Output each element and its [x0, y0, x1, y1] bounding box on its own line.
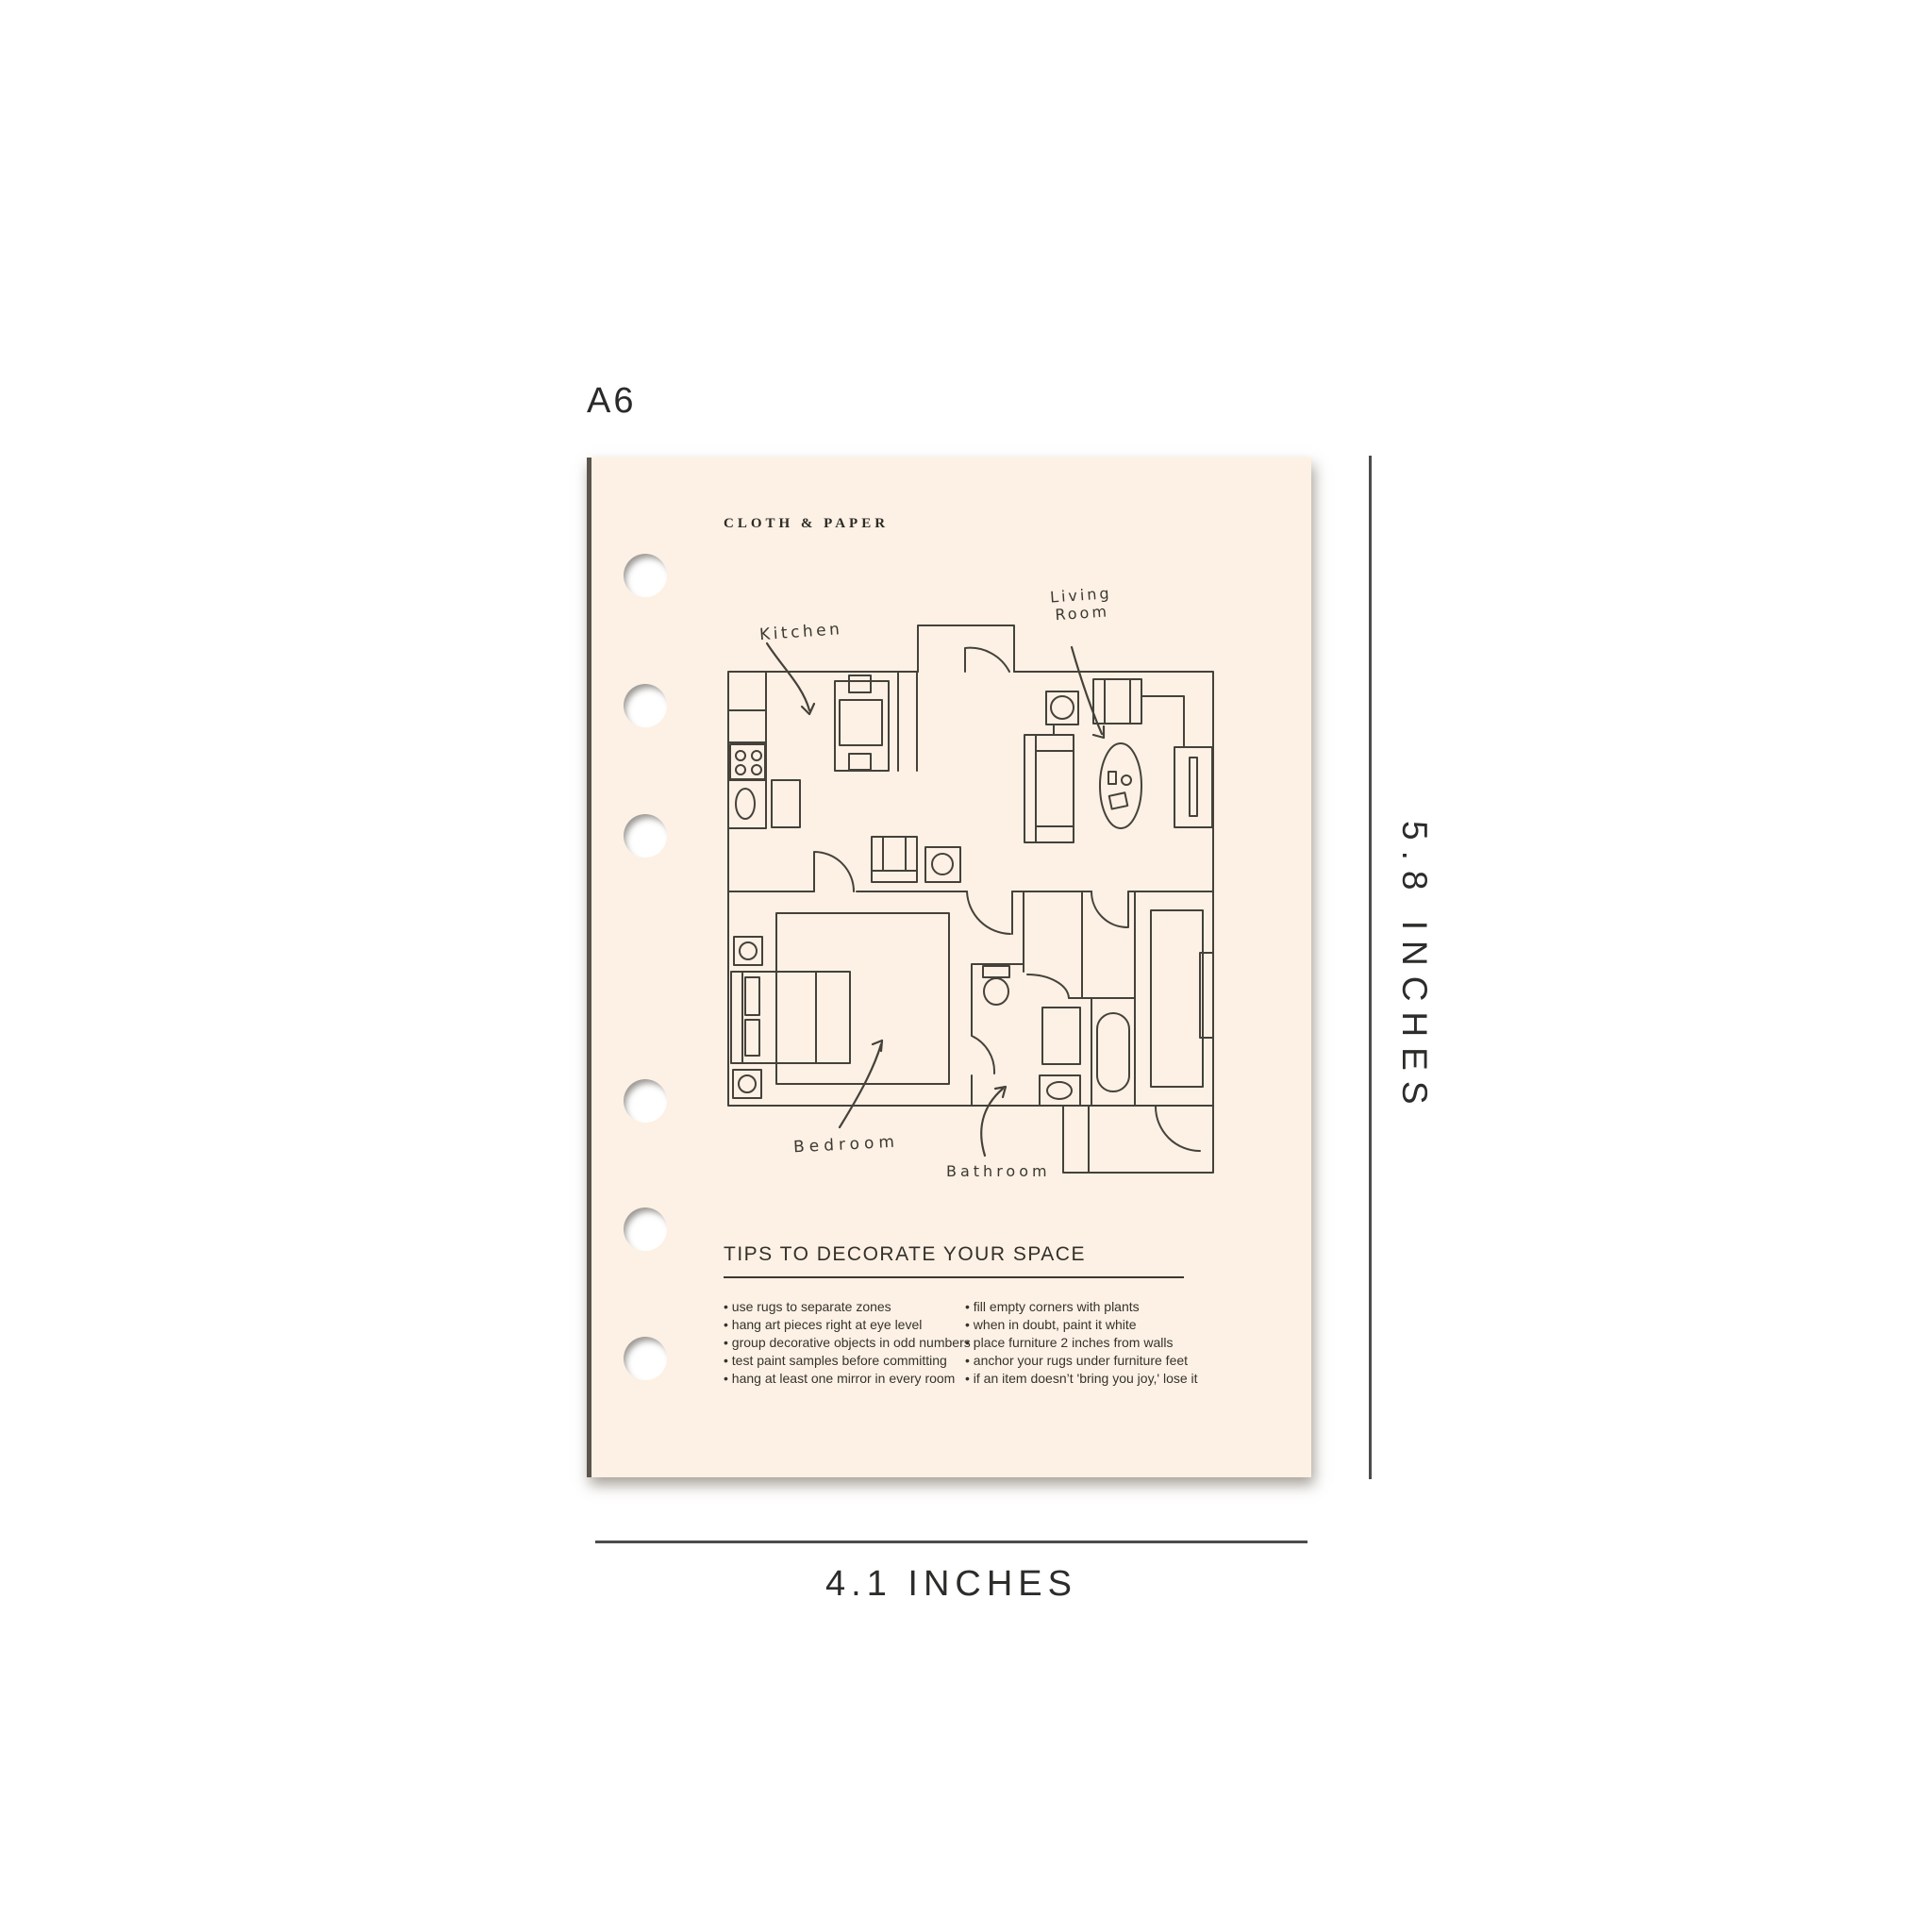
- tip-item: test paint samples before committing: [724, 1352, 971, 1370]
- tip-item: anchor your rugs under furniture feet: [965, 1352, 1198, 1370]
- tip-item: place furniture 2 inches from walls: [965, 1334, 1198, 1352]
- tip-item: group decorative objects in odd numbers: [724, 1334, 971, 1352]
- tips-left-column: use rugs to separate zones hang art piec…: [724, 1298, 971, 1388]
- bedroom-furniture: [731, 913, 949, 1098]
- size-label: A6: [587, 381, 636, 422]
- kitchen-label: Kitchen: [758, 620, 843, 644]
- height-measure-line: [1369, 456, 1372, 1479]
- tips-section: TIPS TO DECORATE YOUR SPACE use rugs to …: [724, 1243, 1252, 1402]
- tips-right-column: fill empty corners with plants when in d…: [965, 1298, 1198, 1388]
- planner-page: CLOTH & PAPER: [587, 458, 1311, 1477]
- living-room-label-line2: Room: [1055, 602, 1110, 624]
- tip-item: hang art pieces right at eye level: [724, 1316, 971, 1334]
- kitchen-furniture: [728, 672, 889, 828]
- width-measure-line: [595, 1541, 1307, 1543]
- label-arrows: [767, 643, 1104, 1156]
- bedroom-label: Bedroom: [793, 1133, 900, 1158]
- tips-divider: [724, 1276, 1184, 1278]
- width-dimension-label: 4.1 INCHES: [595, 1564, 1307, 1605]
- floor-plan-walls: [728, 625, 1213, 1173]
- tip-item: hang at least one mirror in every room: [724, 1370, 971, 1388]
- bathroom-label: Bathroom: [946, 1162, 1051, 1180]
- tips-heading: TIPS TO DECORATE YOUR SPACE: [724, 1243, 1252, 1266]
- hallway-furniture: [872, 837, 960, 882]
- tip-item: fill empty corners with plants: [965, 1298, 1198, 1316]
- height-dimension-label: 5.8 INCHES: [1394, 821, 1434, 1115]
- tip-item: if an item doesn’t 'bring you joy,' lose…: [965, 1370, 1198, 1388]
- tip-item: use rugs to separate zones: [724, 1298, 971, 1316]
- bathroom-furniture: [983, 910, 1213, 1106]
- height-dimension: 5.8 INCHES: [1394, 456, 1434, 1479]
- product-mockup: A6 CLOTH & PAPER: [0, 0, 1932, 1932]
- tip-item: when in doubt, paint it white: [965, 1316, 1198, 1334]
